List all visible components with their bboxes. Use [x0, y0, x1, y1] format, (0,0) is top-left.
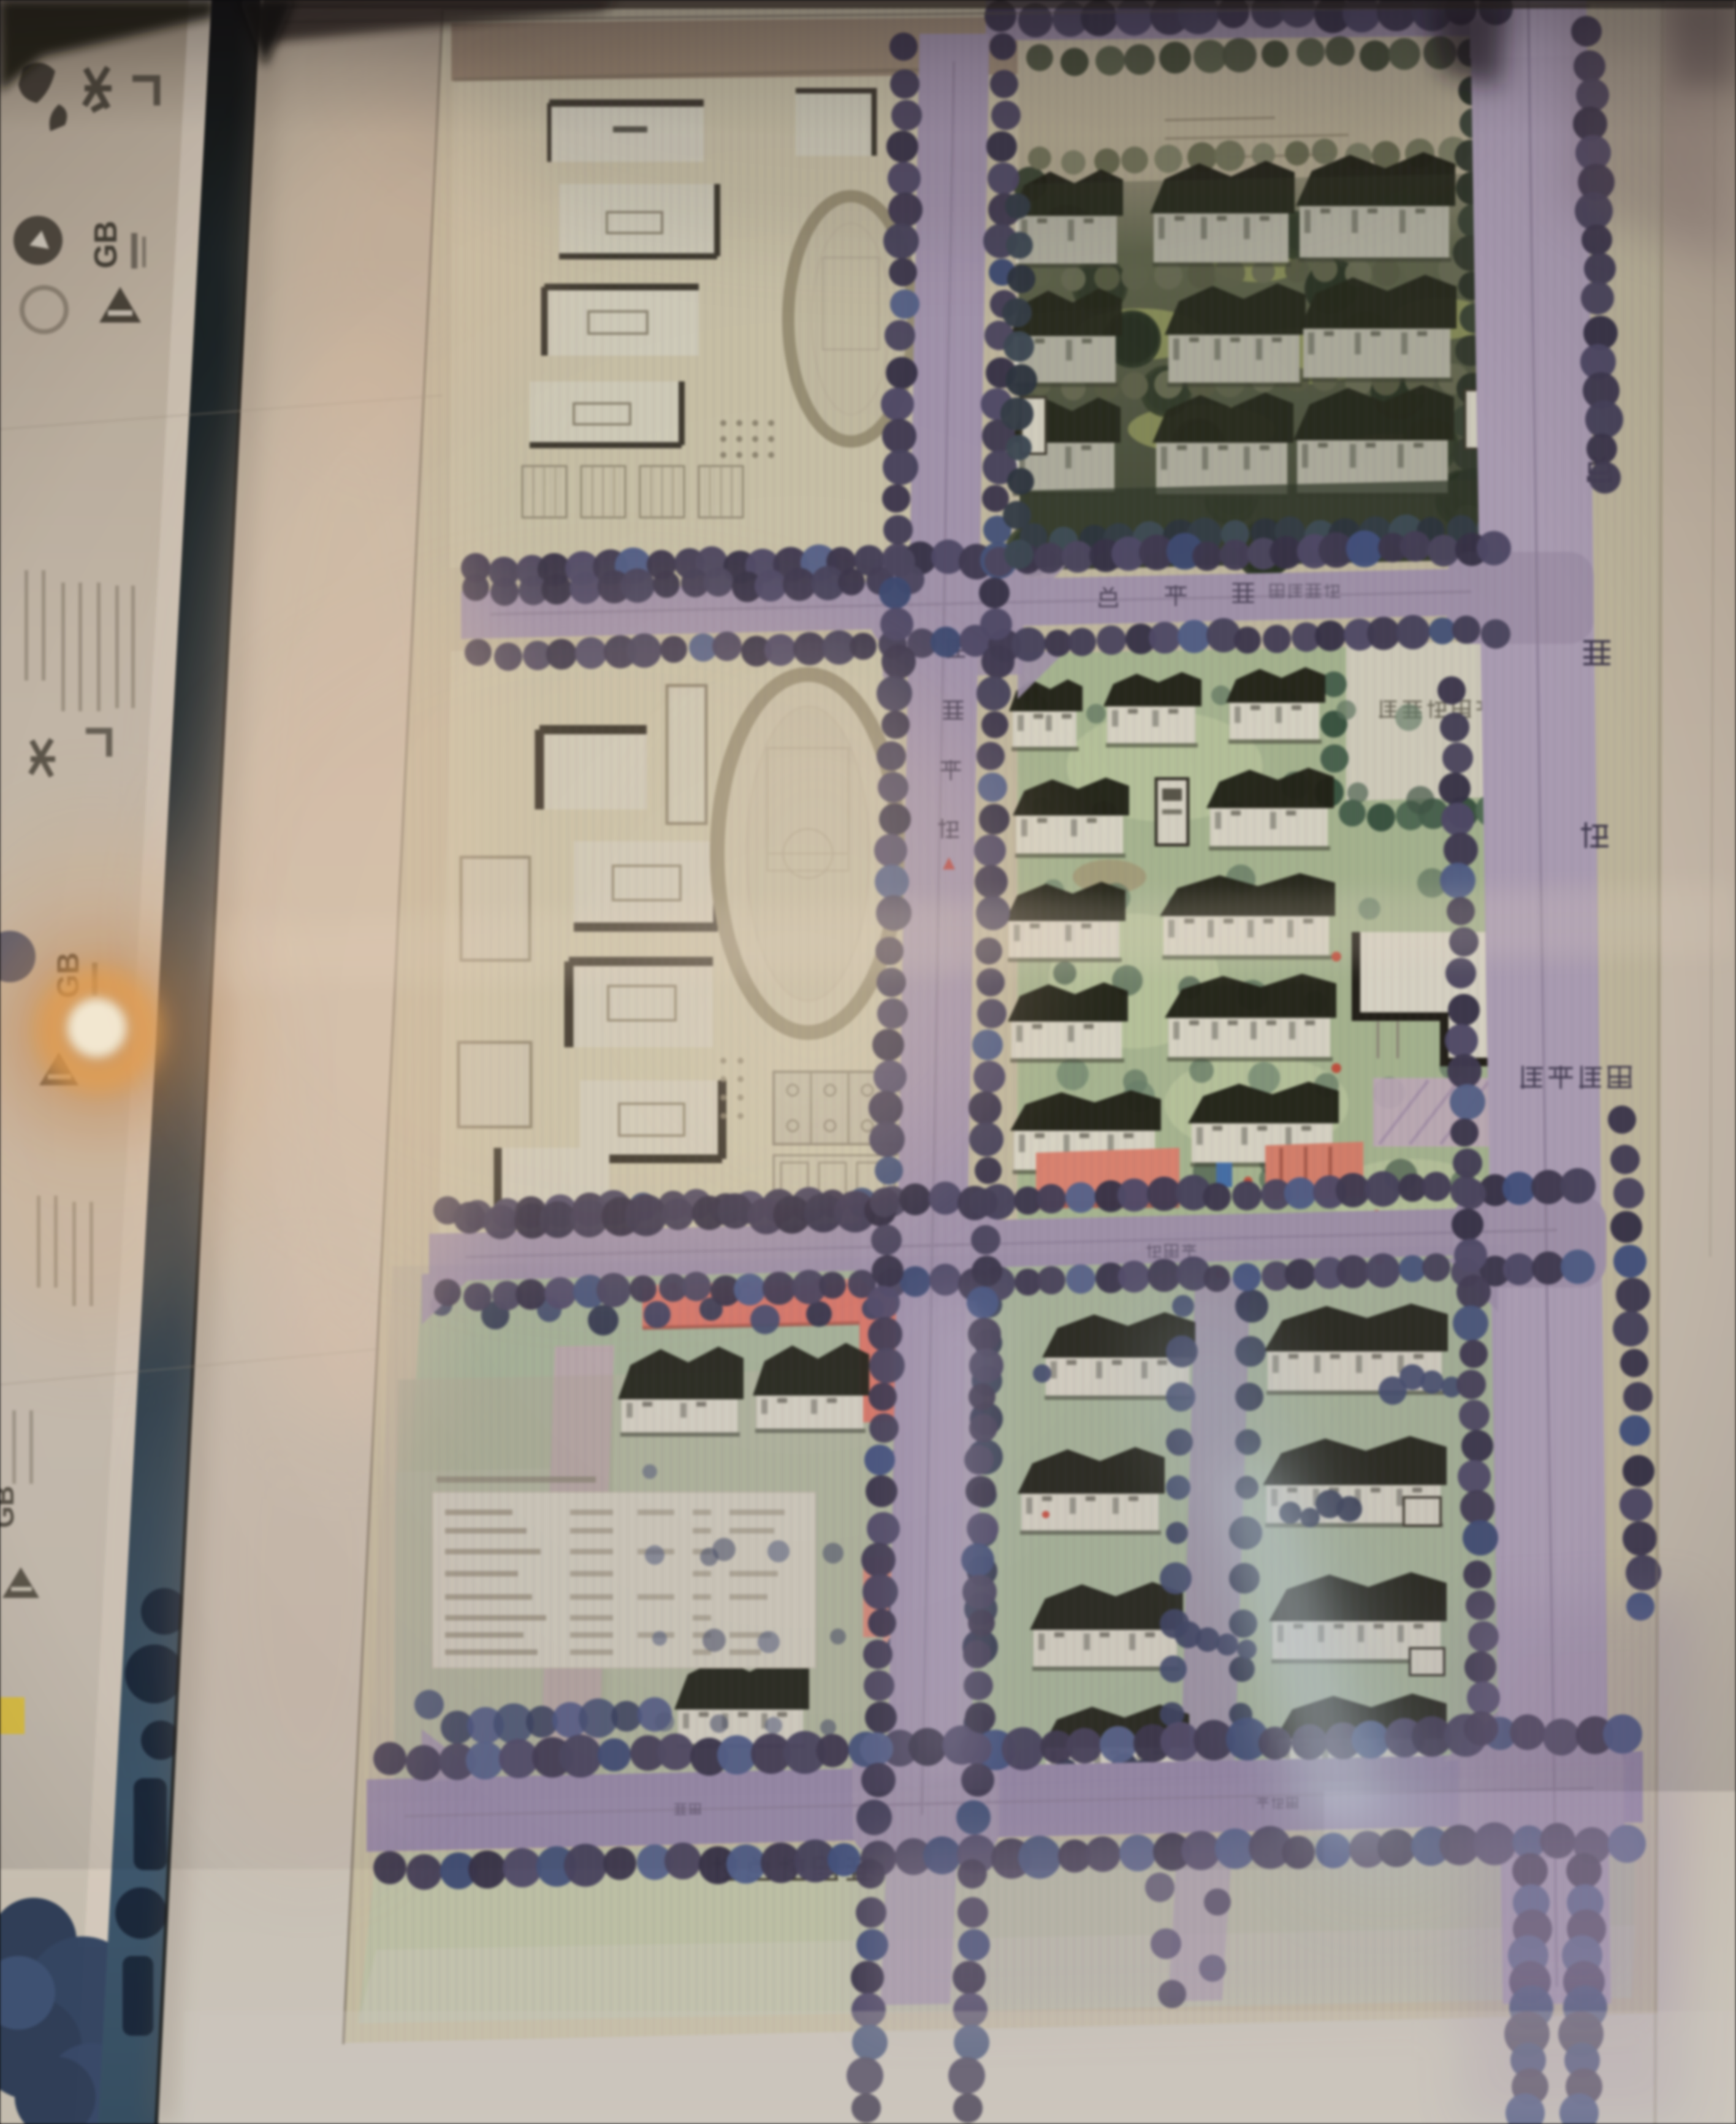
- svg-text:1:1500: 1:1500: [1355, 1893, 1439, 1925]
